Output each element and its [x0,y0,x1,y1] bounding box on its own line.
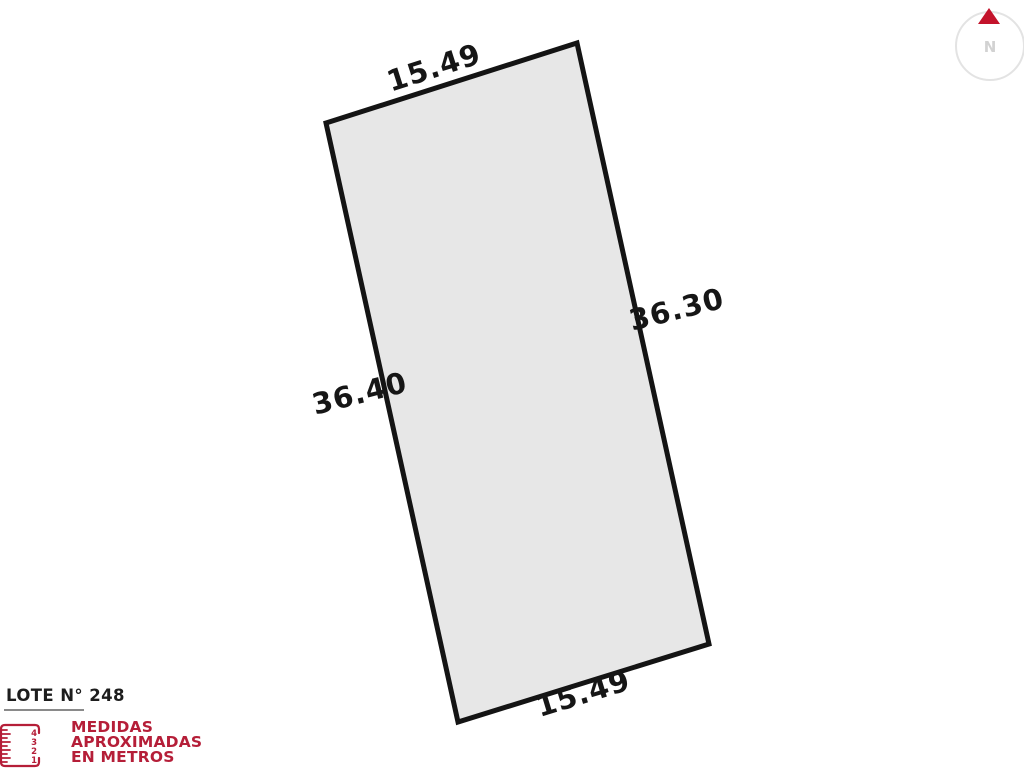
compass-n-label: N [984,38,997,56]
ruler-icon: 4 3 2 1 [0,723,42,768]
ruler-number-1: 1 [31,756,37,766]
measurement-right: 36.30 [626,281,728,337]
units-note-line3: EN METROS [71,750,202,765]
lot-plan-canvas: 15.49 36.30 36.40 15.49 N LOTE N° 248 [0,0,1024,768]
lot-title: LOTE N° 248 [6,686,125,705]
north-compass: N [950,2,1024,86]
units-note: MEDIDAS APROXIMADAS EN METROS [71,720,202,764]
legend-divider [4,709,84,711]
lot-plan-diagram: 15.49 36.30 36.40 15.49 [0,0,1024,768]
